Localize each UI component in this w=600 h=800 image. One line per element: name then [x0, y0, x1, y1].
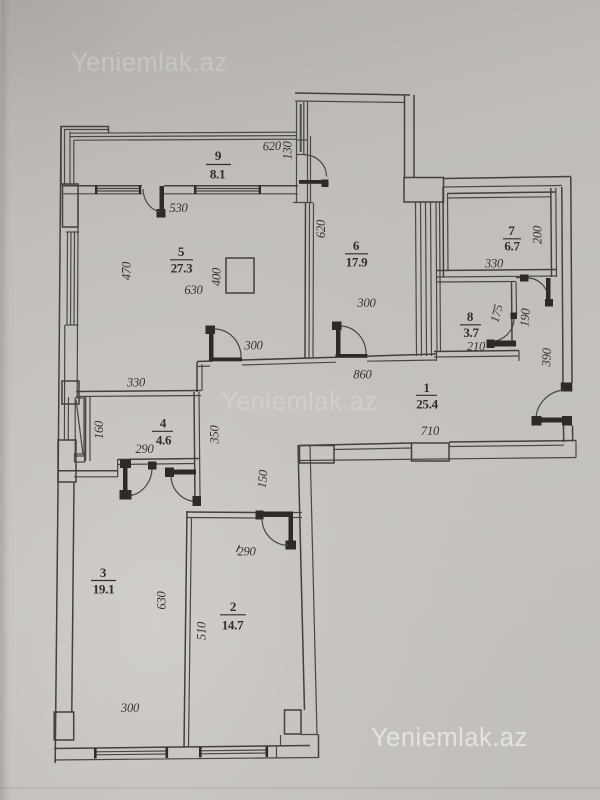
svg-text:4: 4 [160, 416, 167, 431]
svg-text:25.4: 25.4 [416, 397, 438, 412]
svg-text:470: 470 [120, 261, 134, 280]
svg-text:290: 290 [237, 545, 256, 559]
svg-text:160: 160 [92, 420, 106, 439]
svg-text:630: 630 [155, 590, 169, 609]
svg-text:5: 5 [178, 244, 185, 259]
svg-text:330: 330 [484, 257, 504, 271]
svg-text:130: 130 [281, 140, 295, 159]
svg-text:400: 400 [210, 267, 224, 286]
svg-text:3.7: 3.7 [463, 325, 479, 340]
svg-text:350: 350 [208, 424, 222, 444]
svg-text:2: 2 [230, 599, 236, 614]
svg-text:14.7: 14.7 [222, 618, 244, 633]
svg-text:300: 300 [356, 296, 376, 310]
svg-text:17.9: 17.9 [346, 255, 368, 270]
svg-text:Yeniemlak.az: Yeniemlak.az [221, 388, 378, 416]
svg-text:530: 530 [169, 201, 188, 215]
svg-text:Yeniemlak.az: Yeniemlak.az [71, 49, 228, 77]
svg-text:710: 710 [421, 424, 440, 438]
svg-text:19.1: 19.1 [93, 582, 115, 597]
svg-text:1: 1 [423, 380, 429, 395]
svg-text:8.1: 8.1 [210, 167, 225, 182]
svg-text:150: 150 [255, 469, 271, 489]
svg-text:630: 630 [184, 283, 203, 297]
svg-text:330: 330 [126, 376, 146, 390]
svg-text:3: 3 [100, 565, 107, 580]
svg-text:Yeniemlak.az: Yeniemlak.az [371, 724, 528, 752]
svg-text:6: 6 [353, 238, 360, 253]
svg-text:190: 190 [517, 307, 533, 327]
svg-text:620: 620 [263, 139, 283, 154]
svg-text:620: 620 [314, 219, 328, 238]
svg-text:4.6: 4.6 [156, 433, 172, 448]
svg-text:9: 9 [215, 148, 222, 163]
svg-text:210: 210 [467, 340, 486, 354]
svg-text:860: 860 [353, 368, 372, 382]
svg-text:290: 290 [135, 442, 154, 456]
svg-text:300: 300 [243, 339, 263, 353]
svg-text:510: 510 [195, 621, 209, 640]
svg-text:8: 8 [467, 309, 474, 324]
svg-text:7: 7 [508, 223, 515, 238]
svg-text:27.3: 27.3 [171, 261, 193, 276]
svg-text:200: 200 [531, 225, 545, 244]
svg-text:390: 390 [539, 347, 554, 368]
svg-text:6.7: 6.7 [504, 239, 520, 254]
svg-text:300: 300 [120, 701, 140, 715]
